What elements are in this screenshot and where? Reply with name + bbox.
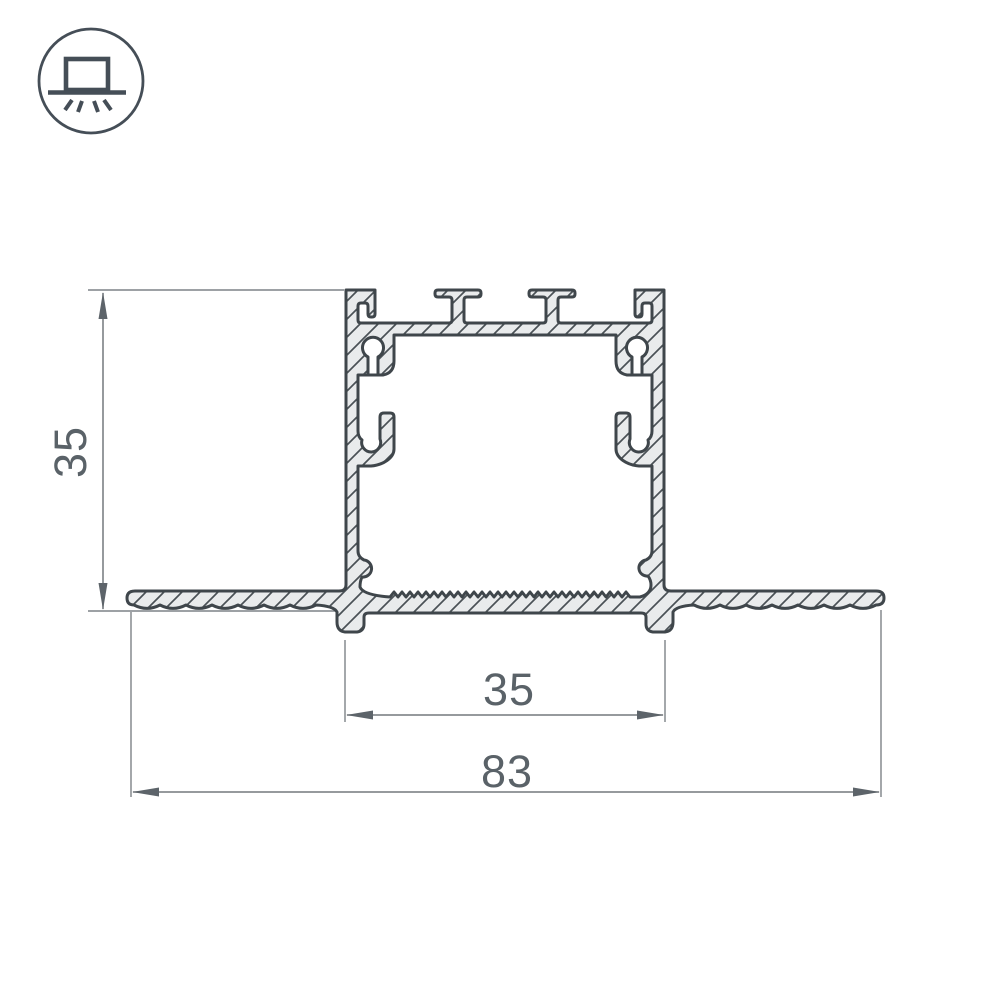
technical-drawing-page: 35 35 83 — [0, 0, 1000, 1000]
icon-lamp-housing — [66, 59, 108, 90]
dimension-recess-width: 35 — [345, 640, 665, 722]
dimension-label-overall-width: 83 — [481, 746, 533, 797]
dimension-height: 35 — [45, 290, 344, 611]
arrowhead-right — [637, 711, 664, 720]
arrowhead-left — [346, 711, 373, 720]
dimension-label-height: 35 — [45, 426, 96, 478]
profile-metal-fill — [127, 290, 884, 632]
recessed-light-icon — [39, 29, 143, 133]
dimension-label-recess-width: 35 — [483, 664, 535, 715]
technical-drawing-canvas: 35 35 83 — [0, 0, 1000, 1000]
arrowhead-up — [99, 292, 108, 319]
profile-metal-hatch-outline — [127, 290, 884, 632]
icon-light-rays — [65, 100, 111, 112]
profile-cross-section — [127, 290, 884, 632]
icon-circle-border — [39, 29, 143, 133]
arrowhead-right — [853, 788, 880, 797]
arrowhead-left — [132, 788, 159, 797]
arrowhead-down — [99, 583, 108, 610]
